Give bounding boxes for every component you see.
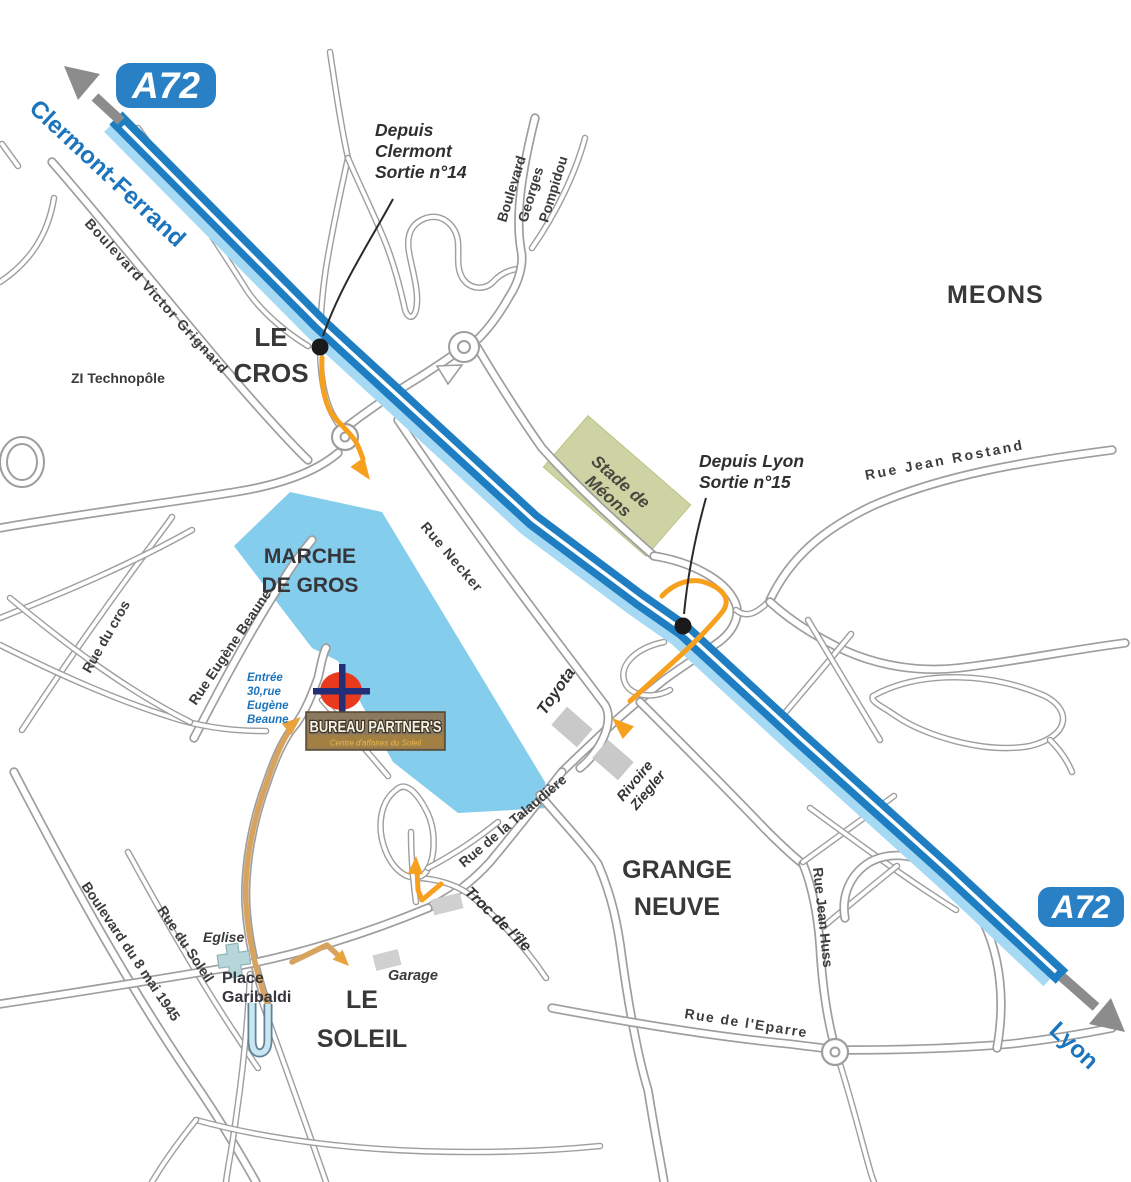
svg-text:Depuis LyonSortie n°15: Depuis LyonSortie n°15 — [699, 451, 804, 492]
svg-text:Eglise: Eglise — [203, 929, 244, 945]
svg-text:Centre d'affaires du Soleil: Centre d'affaires du Soleil — [330, 739, 422, 748]
svg-text:MEONS: MEONS — [947, 281, 1044, 309]
svg-text:ZI Technopôle: ZI Technopôle — [71, 370, 165, 386]
svg-text:A72: A72 — [131, 65, 200, 106]
svg-text:A72: A72 — [1051, 889, 1111, 925]
svg-text:BUREAU PARTNER'S: BUREAU PARTNER'S — [310, 719, 442, 736]
svg-text:Garage: Garage — [388, 968, 438, 984]
